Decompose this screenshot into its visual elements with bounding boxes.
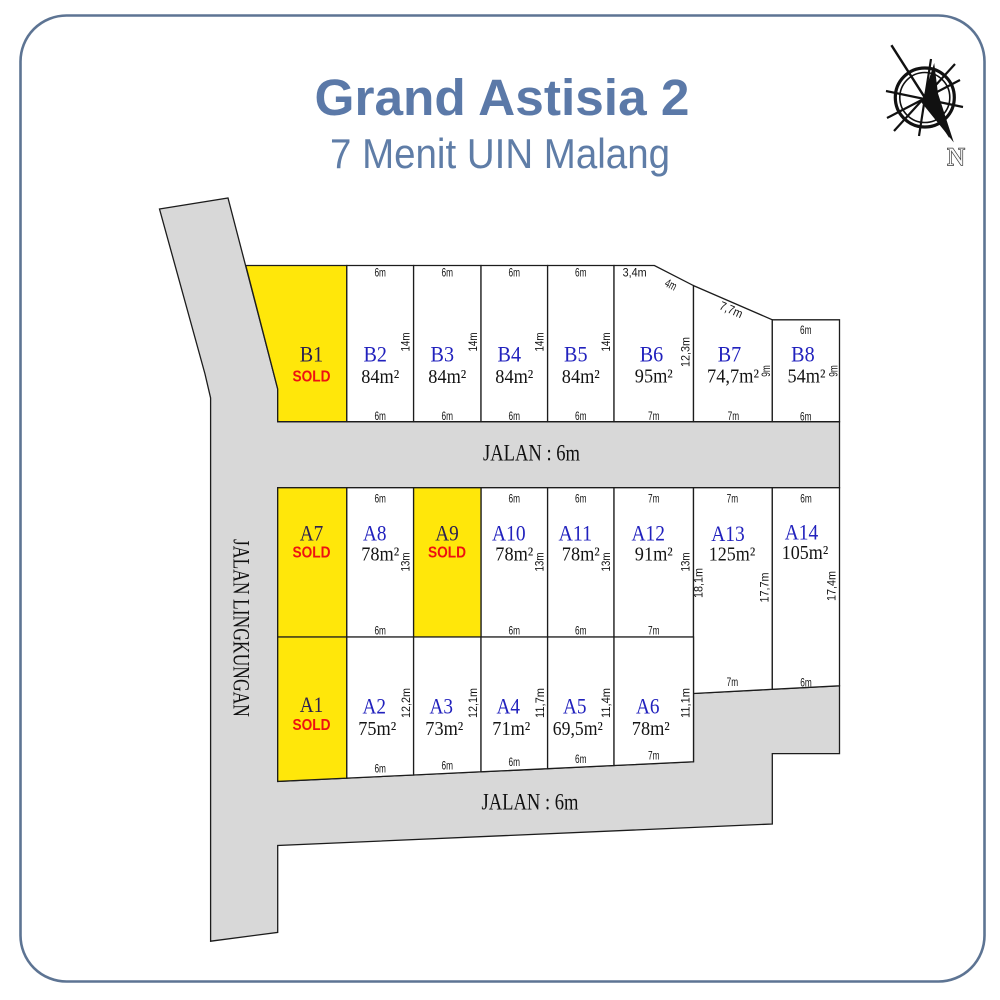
svg-text:84m²: 84m² xyxy=(562,366,600,388)
svg-text:75m²: 75m² xyxy=(358,718,396,740)
svg-text:12,2m: 12,2m xyxy=(399,688,413,718)
svg-text:A14: A14 xyxy=(785,520,819,545)
svg-text:SOLD: SOLD xyxy=(293,369,331,386)
svg-text:7m: 7m xyxy=(648,491,660,505)
svg-text:91m²: 91m² xyxy=(635,543,673,565)
svg-text:18,1m: 18,1m xyxy=(692,568,706,598)
svg-text:13m: 13m xyxy=(599,553,613,572)
svg-text:6m: 6m xyxy=(575,491,587,505)
svg-text:JALAN : 6m: JALAN : 6m xyxy=(483,440,580,466)
svg-text:6m: 6m xyxy=(800,676,812,690)
svg-text:7m: 7m xyxy=(727,491,739,505)
svg-text:JALAN : 6m: JALAN : 6m xyxy=(482,790,579,816)
svg-text:9m: 9m xyxy=(827,365,841,377)
svg-text:6m: 6m xyxy=(575,265,587,279)
svg-text:A5: A5 xyxy=(563,694,587,719)
svg-text:6m: 6m xyxy=(800,491,812,505)
svg-text:125m²: 125m² xyxy=(709,543,756,565)
svg-text:69,5m²: 69,5m² xyxy=(553,718,603,740)
svg-text:78m²: 78m² xyxy=(632,718,670,740)
svg-text:78m²: 78m² xyxy=(562,543,600,565)
svg-text:A6: A6 xyxy=(636,694,660,719)
svg-text:6m: 6m xyxy=(800,323,812,337)
svg-text:A2: A2 xyxy=(362,694,386,719)
svg-text:7 Menit UIN Malang: 7 Menit UIN Malang xyxy=(330,130,670,177)
svg-text:11,4m: 11,4m xyxy=(599,688,613,718)
svg-text:6m: 6m xyxy=(800,409,812,423)
svg-text:A9: A9 xyxy=(435,520,459,545)
svg-text:SOLD: SOLD xyxy=(293,545,331,562)
svg-text:13m: 13m xyxy=(533,553,547,572)
svg-text:B6: B6 xyxy=(640,342,664,367)
svg-text:84m²: 84m² xyxy=(428,366,466,388)
svg-text:A10: A10 xyxy=(492,520,526,545)
svg-text:A11: A11 xyxy=(559,520,593,545)
svg-text:14m: 14m xyxy=(533,333,547,352)
svg-text:SOLD: SOLD xyxy=(293,717,331,734)
svg-text:JALAN LINGKUNGAN: JALAN LINGKUNGAN xyxy=(228,539,254,717)
svg-text:B8: B8 xyxy=(791,342,815,367)
svg-text:A8: A8 xyxy=(363,520,387,545)
svg-text:7m: 7m xyxy=(648,409,660,423)
svg-text:84m²: 84m² xyxy=(361,366,399,388)
svg-text:6m: 6m xyxy=(509,755,521,769)
svg-text:11,7m: 11,7m xyxy=(533,688,547,718)
svg-text:B3: B3 xyxy=(431,342,455,367)
svg-text:12,3m: 12,3m xyxy=(679,337,693,367)
svg-text:7m: 7m xyxy=(727,675,739,689)
svg-text:6m: 6m xyxy=(374,762,386,776)
svg-text:A7: A7 xyxy=(300,520,324,545)
svg-text:6m: 6m xyxy=(509,623,521,637)
svg-text:6m: 6m xyxy=(509,265,521,279)
svg-text:B2: B2 xyxy=(363,342,387,367)
svg-text:3,4m: 3,4m xyxy=(623,265,647,279)
svg-text:Grand Astisia 2: Grand Astisia 2 xyxy=(315,69,690,126)
svg-text:A4: A4 xyxy=(497,694,521,719)
svg-text:A12: A12 xyxy=(631,520,665,545)
svg-text:6m: 6m xyxy=(374,491,386,505)
svg-text:95m²: 95m² xyxy=(635,366,673,388)
svg-text:13m: 13m xyxy=(399,553,413,572)
svg-text:78m²: 78m² xyxy=(495,543,533,565)
svg-text:13m: 13m xyxy=(679,553,693,572)
svg-text:B4: B4 xyxy=(498,342,522,367)
svg-text:71m²: 71m² xyxy=(492,718,530,740)
svg-text:105m²: 105m² xyxy=(782,542,829,564)
svg-text:6m: 6m xyxy=(374,409,386,423)
svg-text:14m: 14m xyxy=(599,333,613,352)
svg-text:6m: 6m xyxy=(374,265,386,279)
svg-text:17,7m: 17,7m xyxy=(758,573,772,603)
svg-text:7m: 7m xyxy=(648,749,660,763)
svg-text:B7: B7 xyxy=(718,342,742,367)
svg-text:17,4m: 17,4m xyxy=(825,571,839,601)
svg-text:78m²: 78m² xyxy=(361,543,399,565)
svg-text:6m: 6m xyxy=(575,623,587,637)
svg-text:6m: 6m xyxy=(442,758,454,772)
svg-text:7m: 7m xyxy=(648,623,660,637)
svg-text:A3: A3 xyxy=(430,694,454,719)
svg-text:6m: 6m xyxy=(575,752,587,766)
svg-text:6m: 6m xyxy=(442,409,454,423)
svg-text:74,7m²: 74,7m² xyxy=(707,366,759,388)
svg-text:12,1m: 12,1m xyxy=(466,688,480,718)
svg-text:A1: A1 xyxy=(300,692,324,717)
svg-text:54m²: 54m² xyxy=(788,366,826,388)
svg-text:B1: B1 xyxy=(300,342,324,367)
svg-text:6m: 6m xyxy=(575,409,587,423)
svg-text:6m: 6m xyxy=(509,491,521,505)
svg-text:11,1m: 11,1m xyxy=(679,688,693,718)
svg-text:B5: B5 xyxy=(564,342,588,367)
svg-text:6m: 6m xyxy=(374,623,386,637)
svg-text:A13: A13 xyxy=(711,521,745,546)
svg-text:14m: 14m xyxy=(466,333,480,352)
svg-text:N: N xyxy=(947,144,965,171)
svg-text:SOLD: SOLD xyxy=(428,545,466,562)
svg-text:14m: 14m xyxy=(399,333,413,352)
svg-text:84m²: 84m² xyxy=(495,366,533,388)
svg-text:6m: 6m xyxy=(509,409,521,423)
svg-text:73m²: 73m² xyxy=(425,718,463,740)
svg-text:6m: 6m xyxy=(442,265,454,279)
svg-text:9m: 9m xyxy=(759,365,773,377)
svg-text:7m: 7m xyxy=(728,409,740,423)
